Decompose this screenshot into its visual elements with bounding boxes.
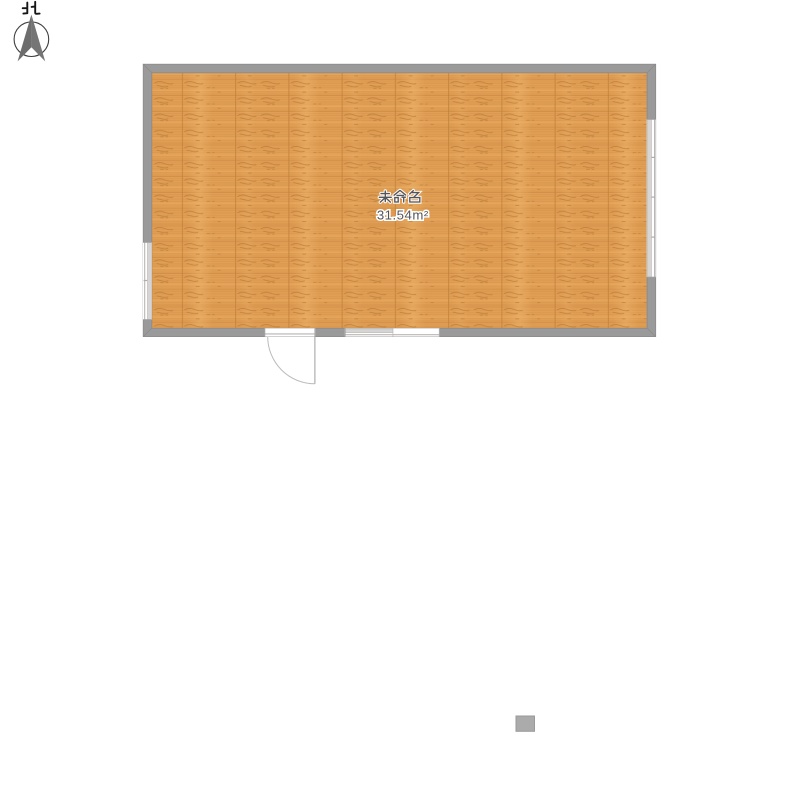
- svg-text:31.54m²: 31.54m²: [377, 208, 429, 223]
